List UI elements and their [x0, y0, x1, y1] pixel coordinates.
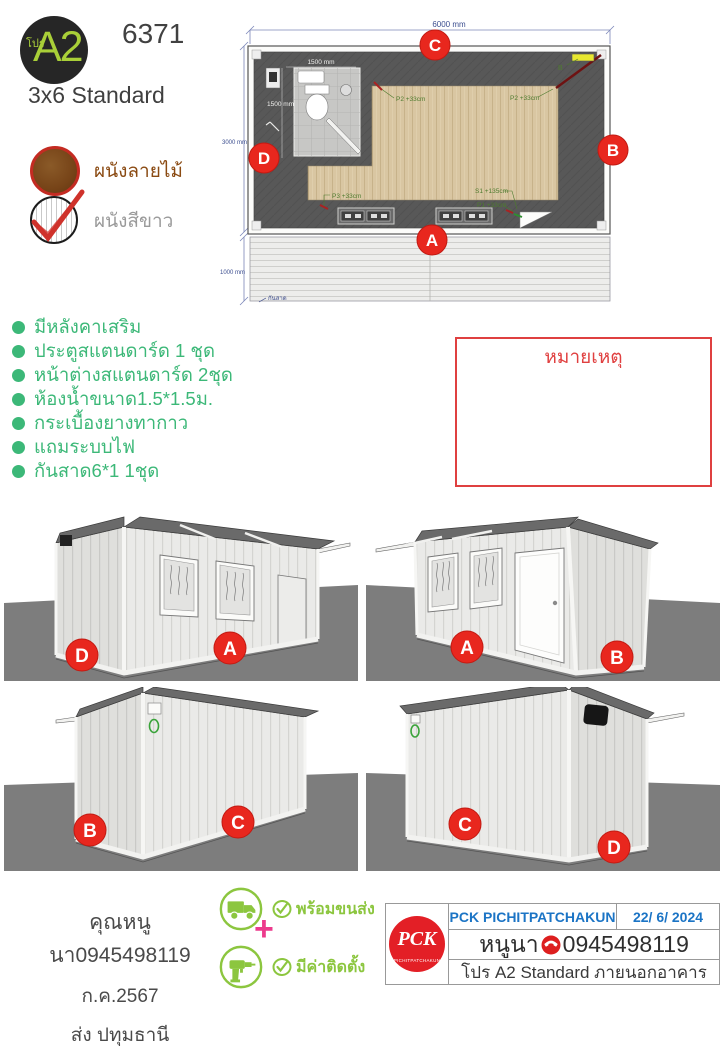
view-marker-letter: C: [231, 813, 245, 834]
door: [515, 548, 564, 663]
phone-icon: [541, 935, 561, 955]
view-marker-letter: A: [460, 638, 474, 659]
feature-text: หน้าต่างสแตนดาร์ด 2ชุด: [34, 364, 233, 386]
view-marker-letter: B: [83, 821, 97, 842]
quote-date: 22/ 6/ 2024: [616, 904, 719, 929]
shipping-destination: ส่ง ปทุมธานี: [20, 1020, 220, 1050]
company-logo-cell: PCK PICHITPATCHAKUN: [386, 904, 449, 984]
electrical-panel: [572, 54, 594, 61]
feature-item: หน้าต่างสแตนดาร์ด 2ชุด: [10, 364, 310, 386]
sink: [298, 71, 324, 83]
pck-logo: PCK PICHITPATCHAKUN: [389, 916, 445, 972]
vent: [60, 535, 72, 546]
brand-badge: โปร A2: [20, 16, 88, 84]
pck-monogram: PCK: [389, 928, 445, 951]
view-3d-ab: A B: [362, 497, 724, 687]
bullet-icon: [12, 321, 25, 334]
window: [160, 555, 198, 617]
window: [216, 561, 254, 621]
roof-overhang: [56, 717, 76, 723]
point-p2-left: P2 +33cm: [396, 96, 425, 103]
junction-box: [411, 715, 420, 723]
install-label: มีค่าติดตั้ง: [296, 955, 365, 980]
feature-item: มีหลังคาเสริม: [10, 316, 310, 338]
feature-item: ห้องน้ำขนาด1.5*1.5ม.: [10, 388, 310, 410]
junction-box: [148, 703, 161, 714]
dim-awning-label: 1000 mm: [220, 270, 245, 276]
bath-width-label: 1500 mm: [307, 59, 334, 66]
plan-marker-c: C: [429, 36, 441, 55]
document-number: 6371: [122, 18, 184, 50]
company-name: PCK PICHITPATCHAKUN: [449, 904, 616, 929]
point-p2-right: P2 +33cm: [510, 95, 539, 102]
bullet-icon: [12, 465, 25, 478]
feature-text: กระเบื้องยางทากาว: [34, 412, 188, 434]
model-name: 3x6 Standard: [28, 82, 165, 109]
view-marker-letter: D: [75, 646, 89, 667]
view-marker-letter: C: [458, 815, 472, 836]
table-row-contact: หนูนา 0945498119: [449, 930, 719, 960]
feature-item: แถมระบบไฟ: [10, 436, 310, 458]
wood-wall-label: ผนังลายไม้: [94, 156, 183, 186]
view-marker-letter: A: [223, 639, 237, 660]
plan-marker-b: B: [607, 141, 619, 160]
window: [428, 553, 458, 612]
feature-item: กันสาด6*1 1ชุด: [10, 460, 310, 482]
awning-label: กันสาด: [268, 295, 287, 302]
plan-marker-d: D: [258, 149, 270, 168]
drill-icon: [218, 944, 264, 990]
delivery-label: พร้อมขนส่ง: [296, 897, 375, 922]
company-table: PCK PICHITPATCHAKUN PCK PICHITPATCHAKUN …: [385, 903, 720, 985]
note-title: หมายเหตุ: [457, 342, 710, 372]
door: [278, 575, 306, 647]
view-3d-bc: B C: [0, 687, 362, 877]
view-3d-da: D A: [0, 497, 362, 687]
feature-text: กันสาด6*1 1ชุด: [34, 460, 159, 482]
check-icon: [272, 899, 292, 919]
check-icon: [272, 957, 292, 977]
bath-depth-label: 1500 mm: [267, 101, 294, 108]
panel-label: B: [558, 65, 563, 72]
plan-marker-a: A: [426, 231, 438, 250]
feature-text: ห้องน้ำขนาด1.5*1.5ม.: [34, 388, 213, 410]
services: พร้อมขนส่ง + มีค่าติดตั้ง: [218, 886, 378, 996]
bullet-icon: [12, 417, 25, 430]
contact-phone: 0945498119: [563, 931, 689, 958]
white-wall-label: ผนังสีขาว: [94, 206, 173, 236]
red-check-icon: [24, 182, 90, 248]
service-delivery: พร้อมขนส่ง: [218, 886, 375, 932]
floor-plan: กันสาด 6000 mm 3000 mm 1000 mm 1500 mm 1…: [220, 8, 724, 308]
view-marker-letter: D: [607, 838, 621, 859]
view-3d-cd: C D: [362, 687, 724, 877]
pck-subtext: PICHITPATCHAKUN: [389, 958, 445, 963]
customer-block: คุณหนูนา0945498119 ก.ค.2567 ส่ง ปทุมธานี: [20, 906, 220, 1050]
table-row-product: โปร A2 Standard ภายนอกอาคาร: [449, 960, 719, 984]
brand-badge-code: A2: [33, 23, 82, 72]
service-install: มีค่าติดตั้ง: [218, 944, 365, 990]
feature-item: กระเบื้องยางทากาว: [10, 412, 310, 434]
window: [470, 548, 502, 609]
bullet-icon: [12, 369, 25, 382]
toilet: [306, 94, 328, 120]
point-p3: P3 +33cm: [332, 193, 361, 200]
note-box: หมายเหตุ: [455, 337, 712, 487]
dim-depth-label: 3000 mm: [222, 140, 247, 146]
customer-name: คุณหนูนา0945498119: [20, 906, 220, 972]
order-month: ก.ค.2567: [20, 981, 220, 1011]
bullet-icon: [12, 345, 25, 358]
vent: [583, 704, 609, 726]
bullet-icon: [12, 441, 25, 454]
point-s1: S1 +135cm: [475, 188, 508, 195]
dim-width-label: 6000 mm: [432, 20, 466, 29]
view-marker-letter: B: [610, 648, 624, 669]
product-line: โปร A2 Standard ภายนอกอาคาร: [461, 959, 707, 986]
contact-name: หนูนา: [479, 927, 539, 963]
feature-text: แถมระบบไฟ: [34, 436, 135, 458]
feature-item: ประตูสแตนดาร์ด 1 ชุด: [10, 340, 310, 362]
point-p1: P1 +33cm: [477, 202, 506, 209]
feature-text: ประตูสแตนดาร์ด 1 ชุด: [34, 340, 215, 362]
feature-list: มีหลังคาเสริม ประตูสแตนดาร์ด 1 ชุด หน้าต…: [10, 316, 310, 484]
feature-text: มีหลังคาเสริม: [34, 316, 141, 338]
bullet-icon: [12, 393, 25, 406]
